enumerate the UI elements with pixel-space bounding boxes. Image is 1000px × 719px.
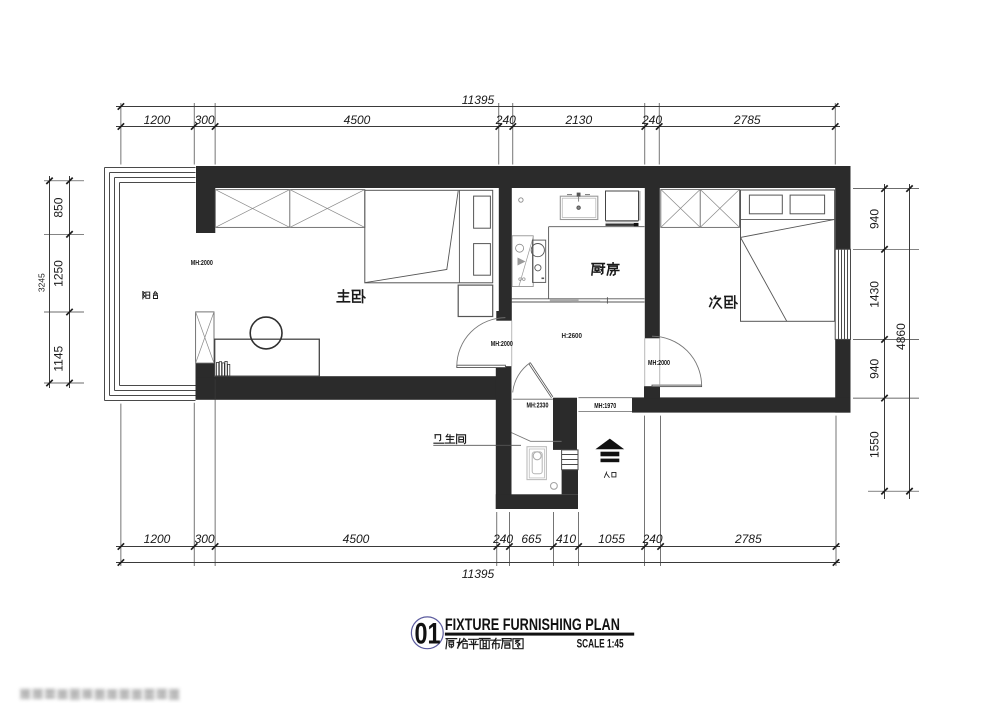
svg-text:240: 240: [641, 113, 662, 127]
svg-text:1200: 1200: [144, 113, 171, 127]
svg-text:1430: 1430: [868, 281, 882, 308]
svg-text:2130: 2130: [564, 113, 592, 127]
svg-text:2785: 2785: [733, 113, 761, 127]
svg-text:SCALE 1:45: SCALE 1:45: [577, 638, 624, 650]
svg-text:240: 240: [492, 532, 513, 546]
svg-text:1145: 1145: [51, 345, 65, 371]
svg-text:4500: 4500: [344, 113, 371, 127]
svg-text:410: 410: [556, 532, 576, 546]
svg-text:1200: 1200: [144, 532, 171, 546]
svg-text:1250: 1250: [51, 260, 65, 287]
svg-text:300: 300: [195, 113, 215, 127]
svg-text:MH:1970: MH:1970: [594, 401, 616, 410]
svg-text:665: 665: [521, 532, 541, 546]
svg-text:MH:2000: MH:2000: [491, 339, 513, 348]
svg-text:FIXTURE FURNISHING PLAN: FIXTURE FURNISHING PLAN: [445, 616, 620, 634]
svg-text:MH:2000: MH:2000: [648, 358, 670, 367]
svg-text:11395: 11395: [462, 93, 495, 107]
svg-text:H:2600: H:2600: [562, 331, 583, 340]
svg-text:4500: 4500: [343, 532, 370, 546]
svg-text:1550: 1550: [868, 431, 882, 458]
svg-text:940: 940: [868, 358, 882, 378]
svg-text:850: 850: [51, 197, 65, 217]
svg-text:1055: 1055: [598, 532, 625, 546]
svg-text:240: 240: [642, 532, 663, 546]
svg-text:240: 240: [495, 113, 516, 127]
svg-text:940: 940: [868, 209, 882, 229]
svg-text:MH:2000: MH:2000: [191, 258, 213, 267]
svg-text:01: 01: [414, 617, 440, 650]
svg-text:3245: 3245: [37, 273, 47, 292]
svg-text:2785: 2785: [734, 532, 762, 546]
svg-text:4860: 4860: [894, 323, 908, 350]
svg-text:300: 300: [195, 532, 215, 546]
svg-text:MH:2330: MH:2330: [527, 401, 549, 410]
svg-text:11395: 11395: [462, 567, 495, 581]
